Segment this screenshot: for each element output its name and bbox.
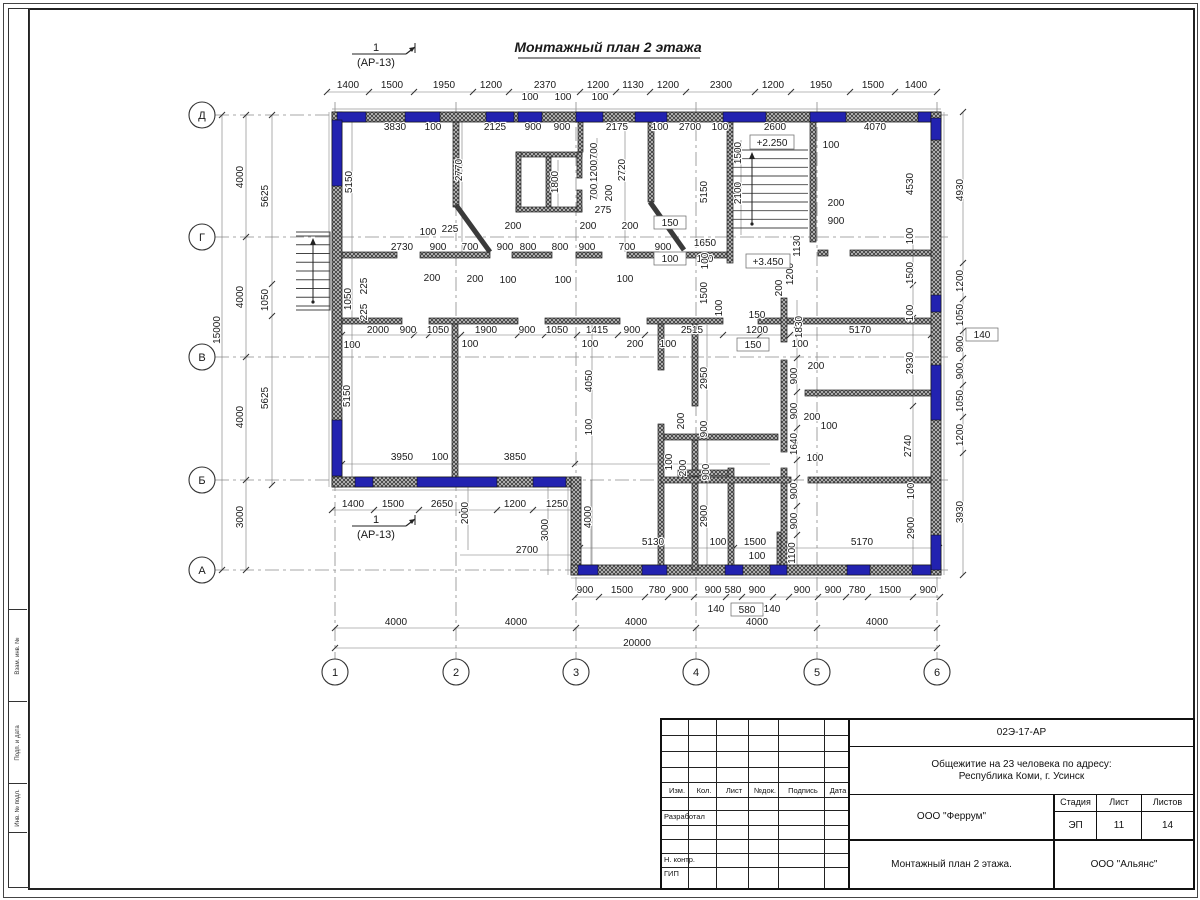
object-name: Общежитие на 23 человека по адресу: Респ… xyxy=(850,747,1193,794)
dimension-label: 100 xyxy=(660,339,677,350)
dimension-label: 1200 xyxy=(587,80,610,91)
dimension-label: 2000 xyxy=(367,325,390,336)
interior-wall xyxy=(692,324,698,406)
dimension-label: 2100 xyxy=(733,181,744,204)
dimension-label: 225 xyxy=(359,303,370,320)
section-mark-ref: (АР-13) xyxy=(357,529,395,541)
revision-grid-line xyxy=(662,839,848,840)
dimension-label: 100 xyxy=(821,421,838,432)
dimension-label: 5150 xyxy=(344,170,355,193)
dimension-label: 1950 xyxy=(433,80,456,91)
dimension-label: 100 xyxy=(344,340,361,351)
dimension-label: 1830 xyxy=(794,315,805,338)
dimension-label: 200 xyxy=(828,198,845,209)
window xyxy=(332,420,342,476)
dimension-label: 275 xyxy=(595,205,612,216)
dimension-label: 100 xyxy=(807,453,824,464)
revision-grid-line xyxy=(662,810,848,811)
dimension-label: 1250 xyxy=(546,499,569,510)
dimension-label: 900 xyxy=(789,482,800,499)
dimension-label: 900 xyxy=(672,585,689,596)
exterior-wall xyxy=(931,112,941,575)
dimension-label: 700 xyxy=(589,183,600,200)
revision-row-label: ГИП xyxy=(664,869,679,878)
dimension-label: 200 xyxy=(774,279,785,296)
revision-col-header: №док. xyxy=(750,786,780,795)
interior-wall xyxy=(577,152,582,178)
dimension-label: 4000 xyxy=(235,165,246,188)
dimension-label: 3850 xyxy=(504,452,527,463)
dimension-label: 1500 xyxy=(611,585,634,596)
dimension-label: 200 xyxy=(424,273,441,284)
dimension-label: 1900 xyxy=(475,325,498,336)
revision-grid-line xyxy=(662,853,848,854)
revision-grid-line xyxy=(778,720,779,888)
dimension-label: 4000 xyxy=(505,617,528,628)
dimension-label: 20000 xyxy=(623,638,651,649)
dimension-label: 2700 xyxy=(679,122,702,133)
drawing-sheet: Взам. инв. № Подп. и дата Инв. № подл. Д… xyxy=(0,0,1200,900)
level-mark: +3.450 xyxy=(753,257,784,268)
dimension-label: 140 xyxy=(764,604,781,615)
dimension-label: 1050 xyxy=(343,287,354,310)
window xyxy=(332,120,342,186)
revision-grid-line xyxy=(716,720,717,888)
dimension-label: 3000 xyxy=(235,505,246,528)
dimension-label: 100 xyxy=(420,227,437,238)
dimension-label: 900 xyxy=(554,122,571,133)
dimension-label: 3830 xyxy=(384,122,407,133)
dimension-label: 1950 xyxy=(810,80,833,91)
interior-wall xyxy=(808,477,931,483)
dimension-label: 150 xyxy=(749,310,766,321)
interior-wall xyxy=(577,190,582,212)
interior-wall xyxy=(692,440,698,570)
dimension-label: 900 xyxy=(624,325,641,336)
interior-wall xyxy=(664,434,778,440)
window xyxy=(770,565,787,575)
interior-wall xyxy=(781,360,787,452)
dimension-label: 100 xyxy=(712,122,729,133)
window xyxy=(725,565,743,575)
dimension-label: 900 xyxy=(701,463,712,480)
revision-grid-line xyxy=(662,751,848,752)
dimension-label: 4050 xyxy=(584,369,595,392)
dimension-label: 100 xyxy=(555,92,572,103)
dimension-label: 2950 xyxy=(699,366,710,389)
axis-bubble-label: 1 xyxy=(332,667,338,679)
axis-bubble-label: 2 xyxy=(453,667,459,679)
dimension-label: 1500 xyxy=(905,261,916,284)
dimension-label: 100 xyxy=(700,252,711,269)
dimension-label: 700 xyxy=(462,242,479,253)
dimension-label: 100 xyxy=(664,453,675,470)
dimension-label: 4000 xyxy=(746,617,769,628)
window xyxy=(405,112,440,122)
axis-bubble-label: Д xyxy=(198,110,206,122)
dimension-label: 900 xyxy=(828,216,845,227)
interior-wall xyxy=(545,318,620,324)
revision-col-header: Дата xyxy=(823,786,853,795)
dimension-label: 200 xyxy=(627,339,644,350)
axis-bubble-label: В xyxy=(198,352,205,364)
dimension-label: 1640 xyxy=(789,432,800,455)
axis-bubble-label: 6 xyxy=(934,667,940,679)
dimension-label: 1130 xyxy=(622,80,644,91)
dimension-label: 2730 xyxy=(391,242,414,253)
section-mark-number: 1 xyxy=(373,514,379,526)
dimension-label: 5170 xyxy=(851,537,874,548)
dimension-label: 100 xyxy=(582,339,599,350)
dimension-label: 200 xyxy=(604,184,615,201)
revision-grid-line xyxy=(662,797,848,798)
exterior-staircase-arrow-head xyxy=(310,238,316,245)
sheet-label: Лист xyxy=(1097,794,1141,811)
interior-wall xyxy=(818,250,828,256)
revision-grid-line xyxy=(662,767,848,768)
axis-bubble-label: 5 xyxy=(814,667,820,679)
dimension-label: 900 xyxy=(789,512,800,529)
dimension-label: 2740 xyxy=(903,434,914,457)
dimension-label: 900 xyxy=(749,585,766,596)
dimension-label: 900 xyxy=(497,242,514,253)
dimension-label: 100 xyxy=(710,537,727,548)
revision-row-label: Разработал xyxy=(664,812,705,821)
revision-grid-line xyxy=(662,867,848,868)
dimension-label: 780 xyxy=(849,585,866,596)
main-staircase-arrow-start xyxy=(750,222,753,225)
dimension-label: 1500 xyxy=(862,80,885,91)
window xyxy=(723,112,766,122)
section-mark-number: 1 xyxy=(373,42,379,54)
dimension-label: 1200 xyxy=(480,80,503,91)
dimension-label: 100 xyxy=(792,339,809,350)
dimension-label: 200 xyxy=(676,412,687,429)
dimension-label: 580 xyxy=(739,605,756,616)
dimension-label: 3000 xyxy=(540,518,551,541)
dimension-label: 225 xyxy=(442,224,459,235)
dimension-label: 900 xyxy=(577,585,594,596)
interior-wall xyxy=(661,477,791,483)
dimension-label: 900 xyxy=(705,585,722,596)
title-block: Изм.Кол.Лист№док.ПодписьДатаРазработалН.… xyxy=(660,718,1195,890)
dimension-label: 1200 xyxy=(762,80,785,91)
dimension-label: 4000 xyxy=(583,505,594,528)
dimension-label: 900 xyxy=(920,585,937,596)
dimension-label: 4000 xyxy=(235,405,246,428)
dimension-label: 2300 xyxy=(710,80,733,91)
dimension-label: 3930 xyxy=(955,500,966,523)
revision-grid-line xyxy=(662,735,848,736)
dimension-label: 100 xyxy=(823,140,840,151)
exterior-wall xyxy=(571,565,941,575)
dimension-label: 1200 xyxy=(657,80,680,91)
window xyxy=(642,565,667,575)
dimension-label: 100 xyxy=(462,339,479,350)
dimension-label: 1130 xyxy=(792,235,803,257)
level-mark: +2.250 xyxy=(757,138,788,149)
dimension-label: 700 xyxy=(589,142,600,159)
interior-wall xyxy=(429,318,518,324)
dimension-label: 2900 xyxy=(699,504,710,527)
dimension-label: 900 xyxy=(699,420,710,437)
dimension-label: 2900 xyxy=(906,516,917,539)
dimension-label: 100 xyxy=(714,299,725,316)
dimension-label: 100 xyxy=(905,227,916,244)
dimension-label: 5150 xyxy=(342,384,353,407)
window xyxy=(417,477,497,487)
dimension-label: 200 xyxy=(808,361,825,372)
exterior-wall xyxy=(571,477,581,575)
dimension-label: 140 xyxy=(708,604,725,615)
window xyxy=(518,112,542,122)
dimension-label: 1500 xyxy=(382,499,405,510)
dimension-label: 150 xyxy=(662,218,679,229)
dimension-label: 900 xyxy=(519,325,536,336)
dimension-label: 2720 xyxy=(617,158,628,181)
dimension-label: 1050 xyxy=(427,325,450,336)
dimension-label: 140 xyxy=(974,330,991,341)
window xyxy=(533,477,566,487)
window xyxy=(931,295,941,312)
dimension-label: 800 xyxy=(552,242,569,253)
dimension-label: 1400 xyxy=(342,499,365,510)
dimension-label: 100 xyxy=(425,122,442,133)
axis-bubble-label: Б xyxy=(198,475,205,487)
company-name: ООО "Альянс" xyxy=(1055,841,1193,888)
interior-wall xyxy=(452,324,458,479)
interior-wall xyxy=(810,122,816,242)
dimension-label: 5625 xyxy=(260,386,271,409)
dimension-label: 100 xyxy=(584,418,595,435)
interior-wall xyxy=(342,318,402,324)
revision-grid-line xyxy=(748,720,749,888)
dimension-label: 900 xyxy=(525,122,542,133)
dimension-label: 1400 xyxy=(905,80,928,91)
dimension-label: 900 xyxy=(794,585,811,596)
axis-bubble-label: 3 xyxy=(573,667,579,679)
window xyxy=(931,535,941,570)
dimension-label: 5130 xyxy=(642,537,665,548)
interior-wall xyxy=(578,122,583,152)
revision-col-header: Лист xyxy=(719,786,749,795)
plan-title: Монтажный план 2 этажа xyxy=(514,39,702,55)
interior-wall xyxy=(516,207,582,212)
dimension-label: 1415 xyxy=(586,325,609,336)
dimension-label: 1500 xyxy=(381,80,404,91)
window xyxy=(635,112,667,122)
dimension-label: 5150 xyxy=(699,180,710,203)
axis-bubble-label: 4 xyxy=(693,667,699,679)
dimension-label: 4000 xyxy=(866,617,889,628)
dimension-label: 150 xyxy=(745,340,762,351)
dimension-label: 2175 xyxy=(606,122,629,133)
dimension-label: 2700 xyxy=(516,545,539,556)
dimension-label: 2515 xyxy=(681,325,704,336)
dimension-label: 580 xyxy=(725,585,742,596)
dimension-label: 1500 xyxy=(879,585,902,596)
window xyxy=(810,112,846,122)
dimension-label: 800 xyxy=(520,242,537,253)
interior-wall xyxy=(781,298,787,342)
dimension-label: 4000 xyxy=(235,285,246,308)
sheet-value: 11 xyxy=(1097,812,1141,839)
dimension-label: 200 xyxy=(678,459,689,476)
stage-label: Стадия xyxy=(1055,794,1096,811)
exterior-staircase-arrow-start xyxy=(311,300,314,303)
interior-wall xyxy=(850,250,931,256)
axis-bubble-label: А xyxy=(198,565,206,577)
dimension-label: 900 xyxy=(400,325,417,336)
window xyxy=(918,112,931,122)
window xyxy=(355,477,373,487)
window xyxy=(931,365,941,420)
sheets-value: 14 xyxy=(1142,812,1193,839)
interior-wall xyxy=(658,424,664,570)
dimension-label: 1400 xyxy=(337,80,360,91)
dimension-label: 100 xyxy=(905,304,916,321)
dimension-label: 225 xyxy=(359,277,370,294)
dimension-label: 700 xyxy=(619,242,636,253)
dimension-label: 100 xyxy=(592,92,609,103)
revision-grid-line xyxy=(662,782,848,783)
dimension-label: 100 xyxy=(617,274,634,285)
dimension-label: 200 xyxy=(580,221,597,232)
interior-wall xyxy=(342,252,397,258)
dimension-label: 4000 xyxy=(385,617,408,628)
dimension-label: 2650 xyxy=(431,499,454,510)
dimension-label: 100 xyxy=(652,122,669,133)
dimension-label: 2930 xyxy=(905,351,916,374)
dimension-label: 900 xyxy=(955,335,966,352)
dimension-label: 3950 xyxy=(391,452,414,463)
dimension-label: 900 xyxy=(825,585,842,596)
dimension-label: 100 xyxy=(522,92,539,103)
interior-wall xyxy=(516,152,582,157)
dimension-label: 200 xyxy=(467,274,484,285)
dimension-label: 2600 xyxy=(764,122,787,133)
dimension-label: 900 xyxy=(655,242,672,253)
dimension-label: 200 xyxy=(622,221,639,232)
dimension-label: 1800 xyxy=(550,170,561,193)
window xyxy=(578,565,598,575)
dimension-label: 5170 xyxy=(849,325,872,336)
dimension-label: 1050 xyxy=(955,303,966,326)
dimension-label: 2770 xyxy=(454,158,465,181)
dimension-label: 1100 xyxy=(787,542,798,564)
dimension-label: 100 xyxy=(555,275,572,286)
dimension-label: 900 xyxy=(579,242,596,253)
dimension-label: 900 xyxy=(789,402,800,419)
dimension-label: 100 xyxy=(432,452,449,463)
dimension-label: 1050 xyxy=(955,389,966,412)
dimension-label: 1500 xyxy=(733,141,744,164)
window xyxy=(847,565,870,575)
window xyxy=(931,118,941,140)
dimension-label: 900 xyxy=(789,367,800,384)
dimension-label: 4530 xyxy=(905,172,916,195)
doc-code: 02Э-17-АР xyxy=(850,720,1193,746)
dimension-label: 4070 xyxy=(864,122,887,133)
stage-value: ЭП xyxy=(1055,812,1096,839)
dimension-label: 1200 xyxy=(955,423,966,446)
dimension-label: 100 xyxy=(906,482,917,499)
interior-wall xyxy=(648,122,654,202)
sheets-label: Листов xyxy=(1142,794,1193,811)
dimension-label: 5625 xyxy=(260,184,271,207)
dimension-label: 2000 xyxy=(460,501,471,524)
dimension-label: 1200 xyxy=(955,269,966,292)
dimension-label: 1050 xyxy=(260,288,271,311)
interior-wall xyxy=(516,152,521,212)
dimension-label: 4000 xyxy=(625,617,648,628)
interior-wall xyxy=(647,318,723,324)
dimension-label: 1200 xyxy=(504,499,527,510)
dimension-label: 100 xyxy=(500,275,517,286)
dimension-label: 100 xyxy=(662,254,679,265)
dimension-label: 100 xyxy=(749,551,766,562)
dimension-label: 1500 xyxy=(744,537,767,548)
dimension-label: 1200 xyxy=(589,159,600,182)
dimension-label: 1500 xyxy=(699,281,710,304)
dimension-label: 2370 xyxy=(534,80,557,91)
dimension-label: 1650 xyxy=(694,238,717,249)
revision-col-header: Изм. xyxy=(662,786,692,795)
drawing-title: Монтажный план 2 этажа. xyxy=(850,841,1053,888)
dimension-label: 900 xyxy=(955,362,966,379)
revision-col-header: Подпись xyxy=(788,786,818,795)
dimension-label: 15000 xyxy=(212,316,223,344)
dimension-label: 900 xyxy=(430,242,447,253)
main-staircase-arrow-head xyxy=(749,152,755,159)
org-name: ООО "Феррум" xyxy=(850,794,1053,839)
dimension-label: 1200 xyxy=(746,325,769,336)
dimension-label: 4930 xyxy=(955,178,966,201)
window xyxy=(912,565,931,575)
revision-grid-line xyxy=(824,720,825,888)
section-mark-ref: (АР-13) xyxy=(357,57,395,69)
axis-bubble-label: Г xyxy=(199,232,205,244)
interior-wall xyxy=(805,390,931,396)
revision-row-label: Н. контр. xyxy=(664,855,695,864)
revision-grid-line xyxy=(662,825,848,826)
dimension-label: 1050 xyxy=(546,325,569,336)
revision-col-header: Кол. xyxy=(689,786,719,795)
dimension-label: 200 xyxy=(804,412,821,423)
dimension-label: 2125 xyxy=(484,122,507,133)
window xyxy=(486,112,514,122)
window xyxy=(576,112,603,122)
dimension-label: 200 xyxy=(505,221,522,232)
dimension-label: 780 xyxy=(649,585,666,596)
